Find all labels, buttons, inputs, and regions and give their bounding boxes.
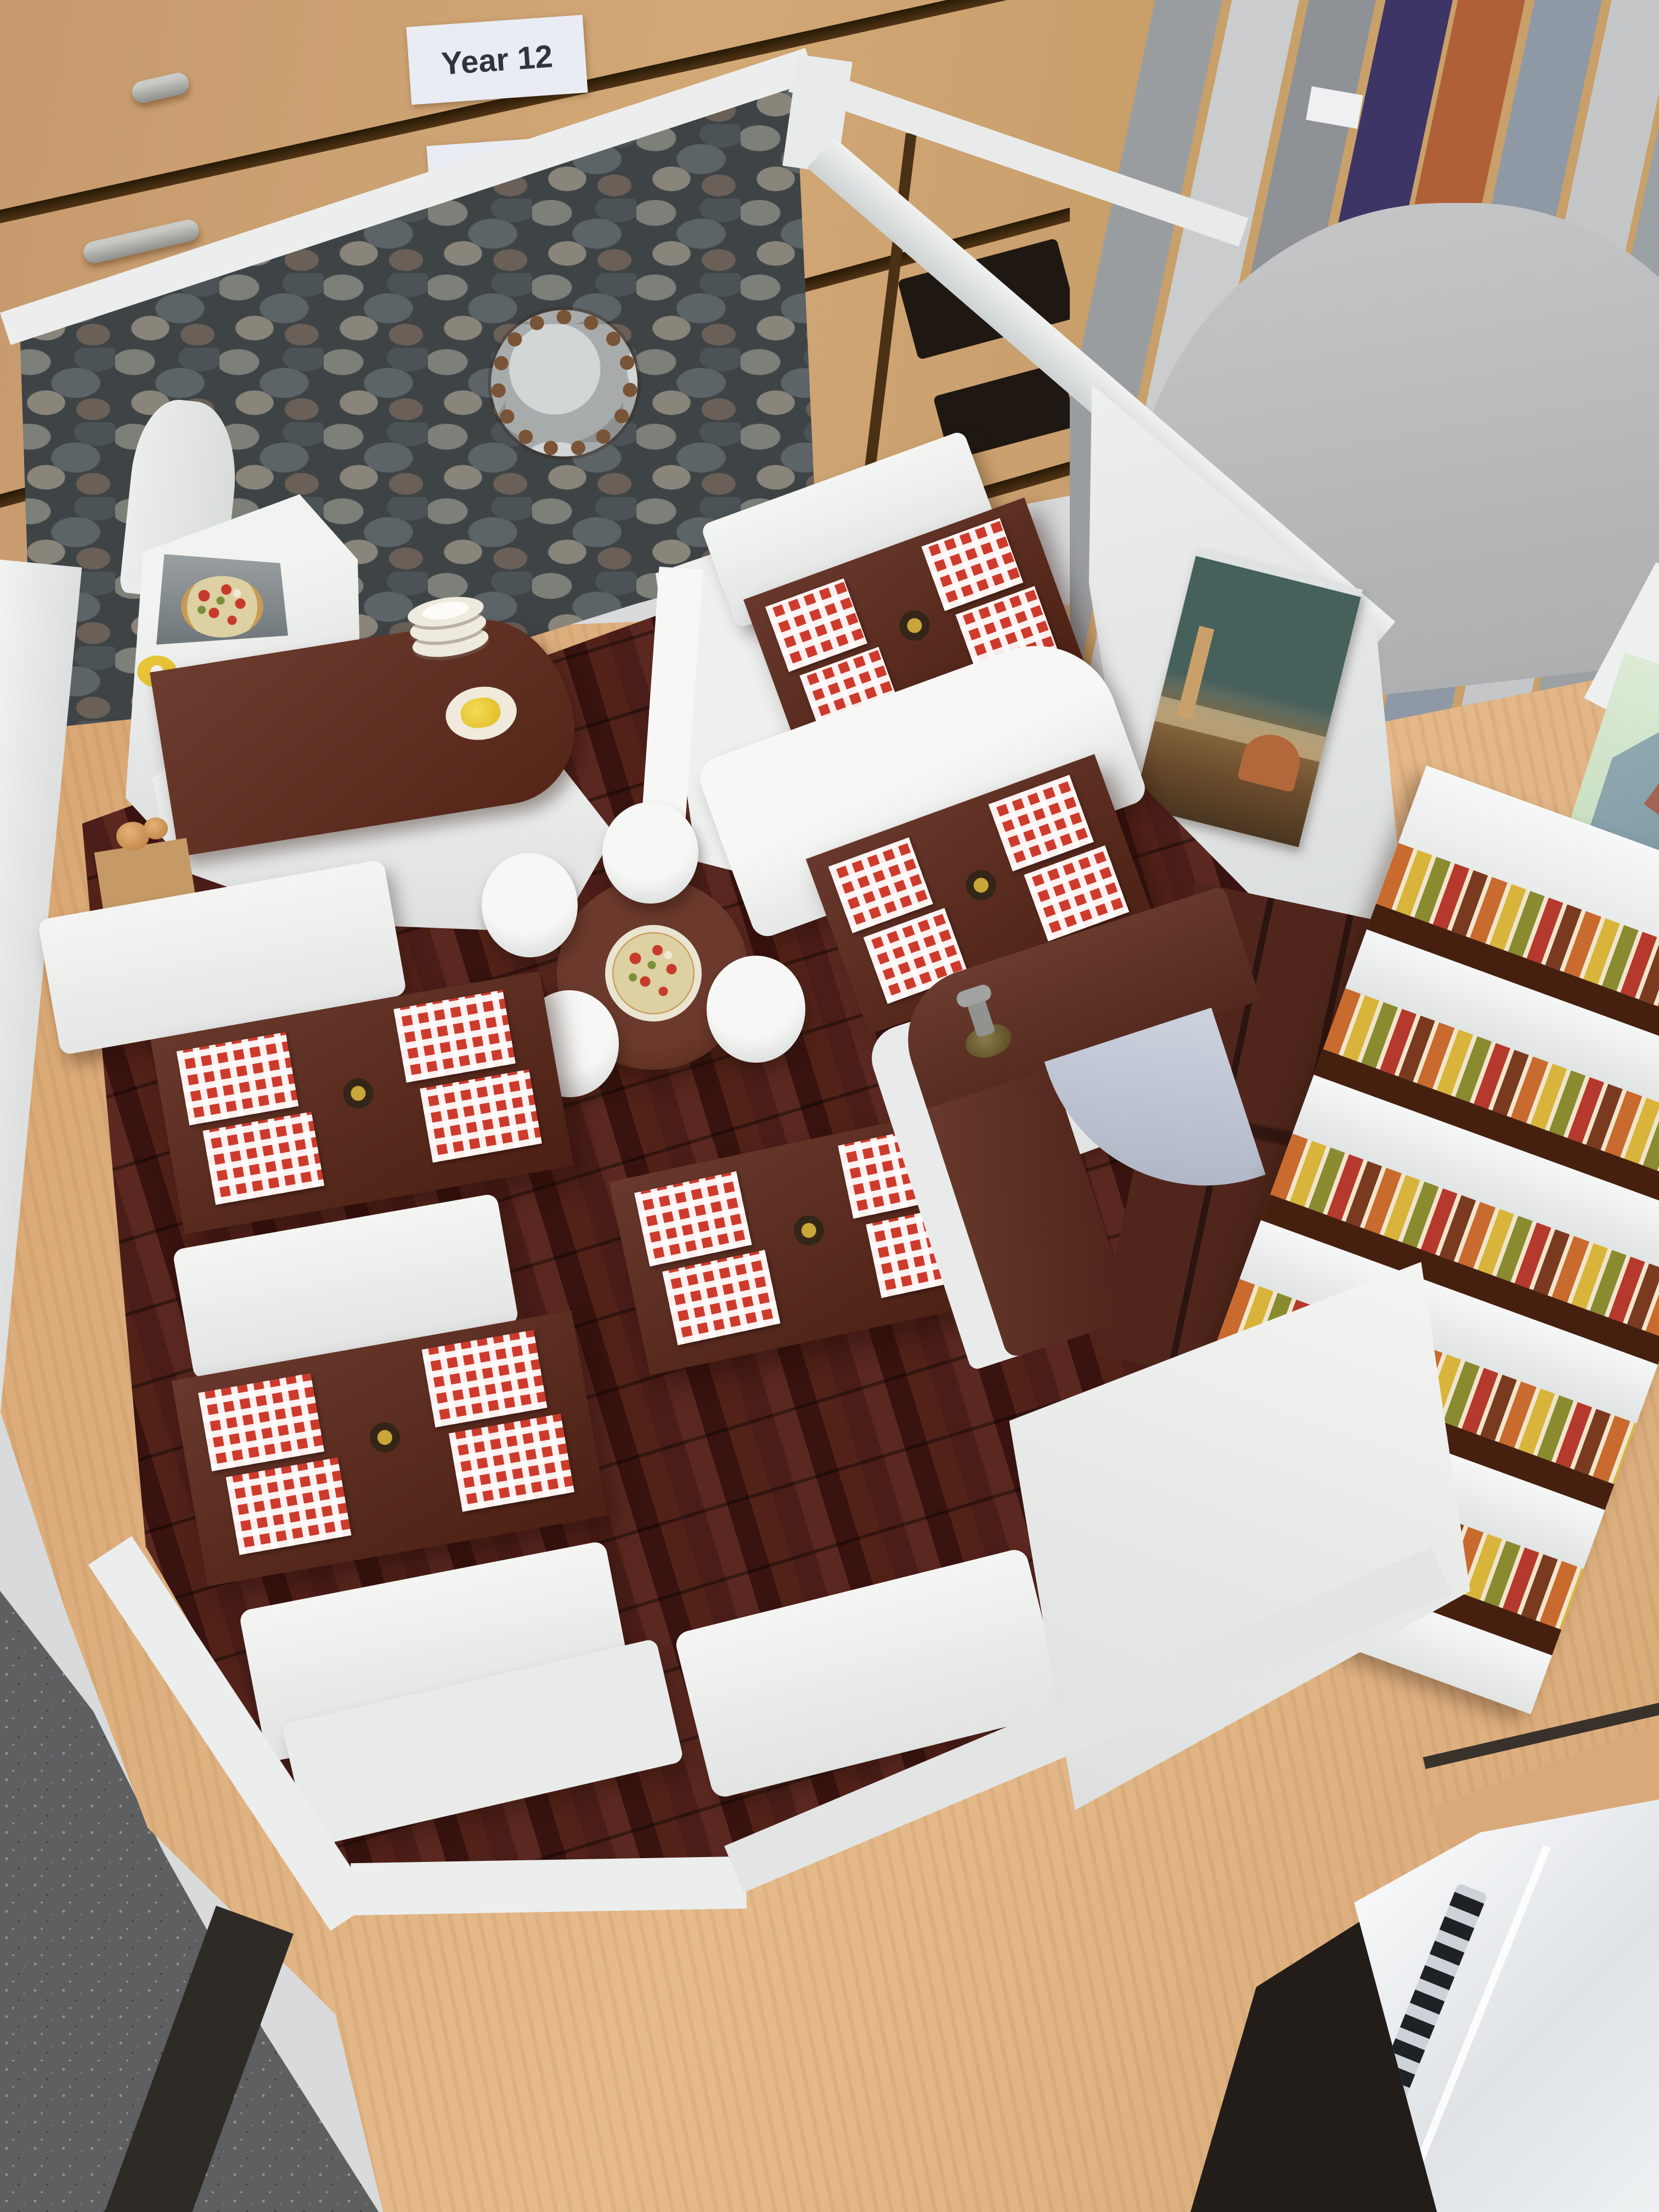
pizza — [612, 932, 695, 1014]
photo-scene: Year 12 Year 11 — [0, 0, 1659, 2212]
wall-mirror — [491, 310, 637, 456]
table-centerpiece — [892, 603, 937, 648]
bread-loaf — [144, 817, 168, 839]
model-base-edge — [351, 1857, 747, 1916]
drawer-handle — [130, 71, 191, 105]
table-centerpiece — [338, 1073, 379, 1113]
white-stool — [707, 956, 805, 1063]
gingham-placemat — [394, 990, 516, 1083]
gingham-placemat — [420, 1069, 541, 1163]
table-centerpiece — [958, 863, 1003, 908]
white-stool — [602, 802, 698, 904]
white-stool — [482, 853, 578, 957]
gingham-placemat — [225, 1458, 351, 1555]
gingham-placemat — [421, 1330, 547, 1427]
pasta-food — [459, 695, 503, 731]
gingham-placemat — [449, 1414, 574, 1511]
pizza-in-oven — [181, 576, 263, 637]
drawer-label-year-12: Year 12 — [406, 15, 588, 105]
pasta-plate — [442, 682, 520, 745]
gingham-placemat — [634, 1171, 752, 1266]
gingham-placemat — [202, 1111, 324, 1205]
gingham-placemat — [662, 1250, 780, 1345]
table-centerpiece — [364, 1417, 405, 1458]
gingham-placemat — [199, 1373, 324, 1471]
table-centerpiece — [788, 1209, 830, 1251]
pizza-board — [605, 925, 702, 1022]
pizza-oven-mouth — [156, 554, 288, 645]
gingham-placemat — [177, 1032, 298, 1125]
drawer-label-year-12-text: Year 12 — [440, 37, 554, 82]
